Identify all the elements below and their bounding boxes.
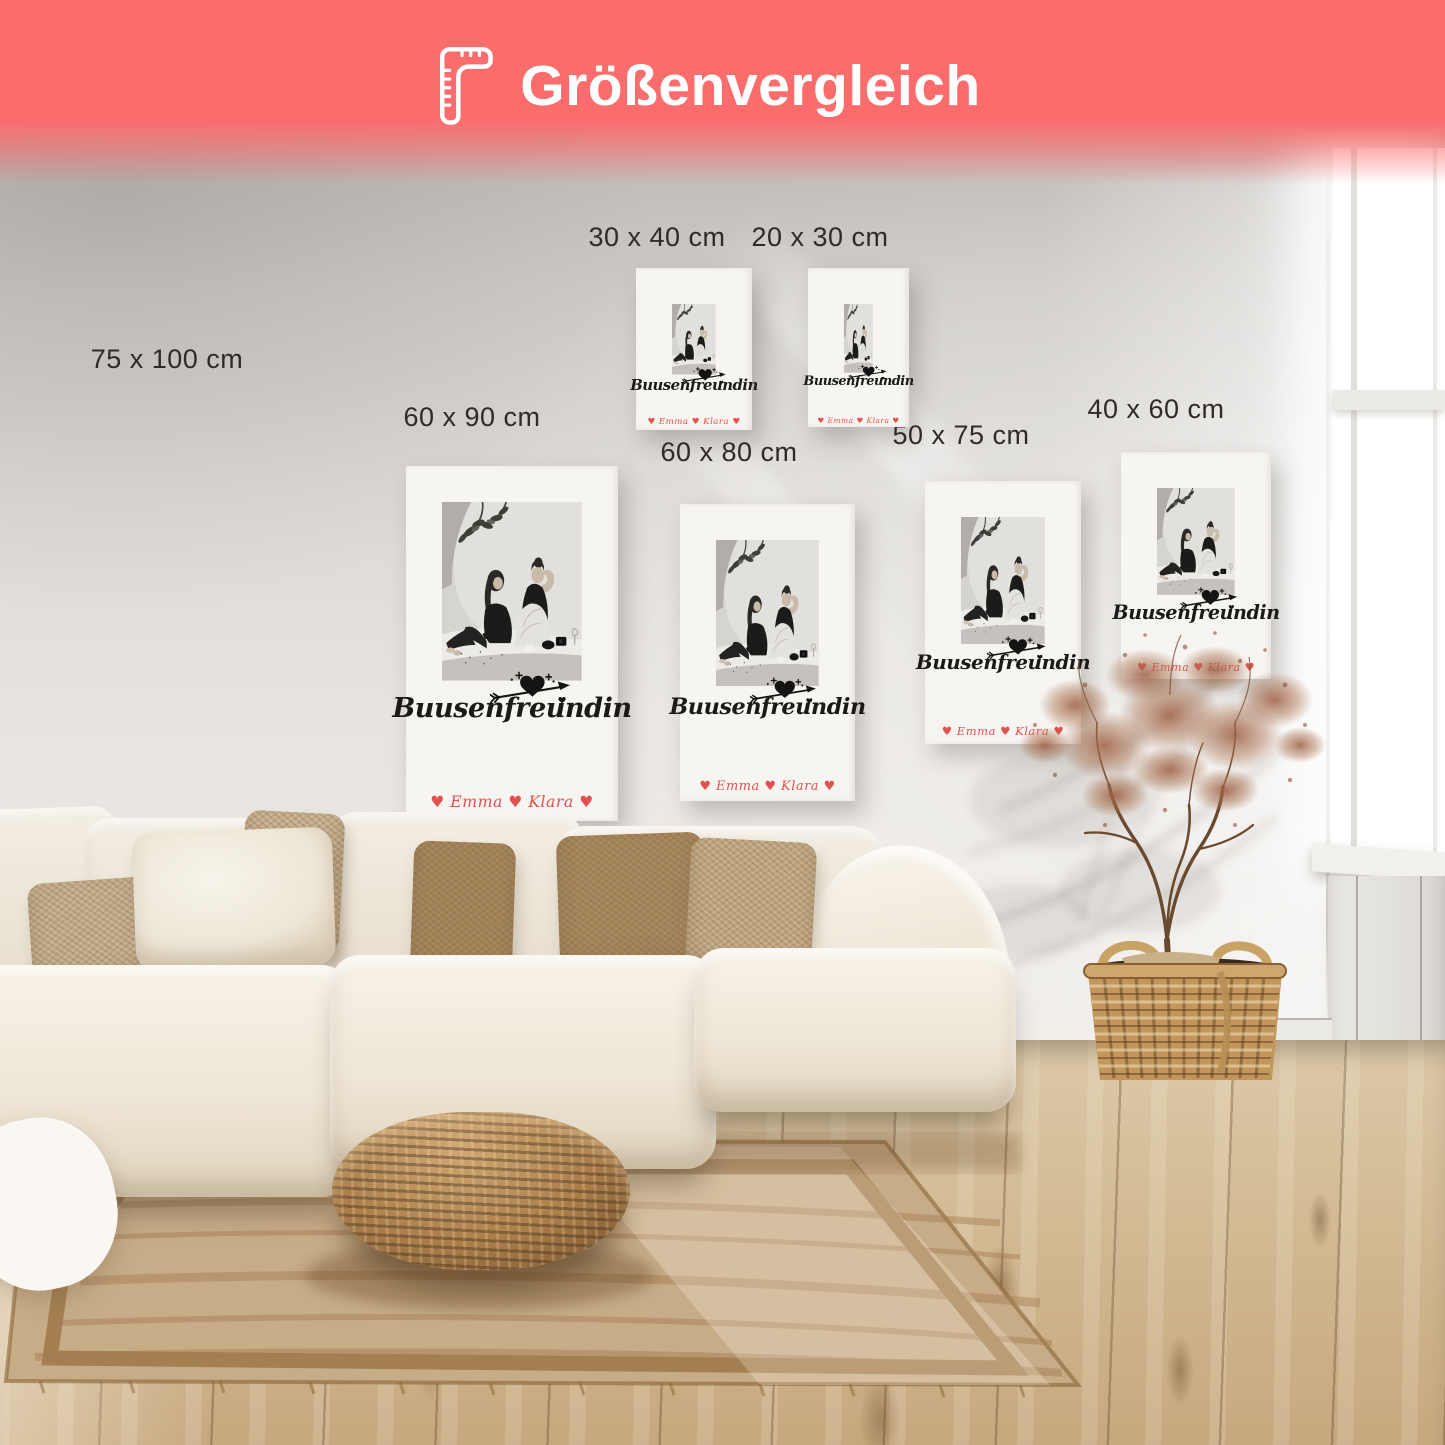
poster-names: ♥ Emma ♥ Klara ♥ (647, 417, 740, 427)
size-label-60x90: 60 x 90 cm (403, 402, 540, 433)
wicker-pouf (332, 1112, 630, 1270)
page-title: Größenvergleich (520, 58, 980, 115)
poster-names: ♥ Emma ♥ Klara ♥ (430, 792, 593, 811)
heart-arrow-icon (848, 364, 888, 384)
poster-photo (716, 540, 819, 686)
size-label-50x75: 50 x 75 cm (892, 420, 1029, 451)
poster-60x80: Buusenfreundin ♥ Emma ♥ Klara ♥ (680, 504, 855, 801)
poster-30x40: Buusenfreundin ♥ Emma ♥ Klara ♥ (636, 268, 752, 430)
ruler-icon (436, 43, 498, 130)
size-label-40x60: 40 x 60 cm (1087, 394, 1224, 425)
sofa-seat-cushion (694, 948, 1016, 1112)
poster-photo (442, 502, 582, 681)
poster-names: ♥ Emma ♥ Klara ♥ (817, 416, 899, 425)
header-band: Größenvergleich (0, 0, 1445, 184)
window-sash-bar (1333, 390, 1445, 410)
size-label-30x40: 30 x 40 cm (588, 222, 725, 253)
size-comparison-graphic: 75 x 100 cm 30 x 40 cm 20 x 30 cm 60 x 9… (0, 0, 1445, 1445)
size-label-20x30: 20 x 30 cm (751, 222, 888, 253)
heart-arrow-icon (682, 366, 728, 389)
heart-arrow-icon (749, 676, 819, 711)
poster-photo (844, 304, 873, 373)
poster-names: ♥ Emma ♥ Klara ♥ (699, 779, 835, 794)
size-label-60x80: 60 x 80 cm (660, 437, 797, 468)
heart-arrow-icon (490, 670, 575, 712)
throw-pillow (132, 827, 337, 972)
wicker-basket (1070, 928, 1300, 1088)
poster-photo (672, 304, 716, 374)
poster-20x30: Buusenfreundin ♥ Emma ♥ Klara ♥ (808, 268, 909, 427)
poster-photo (1157, 488, 1235, 595)
size-label-75x100: 75 x 100 cm (91, 344, 244, 375)
poster-60x90: Buusenfreundin ♥ Emma ♥ Klara ♥ (406, 466, 618, 821)
window-frame (1433, 148, 1437, 862)
